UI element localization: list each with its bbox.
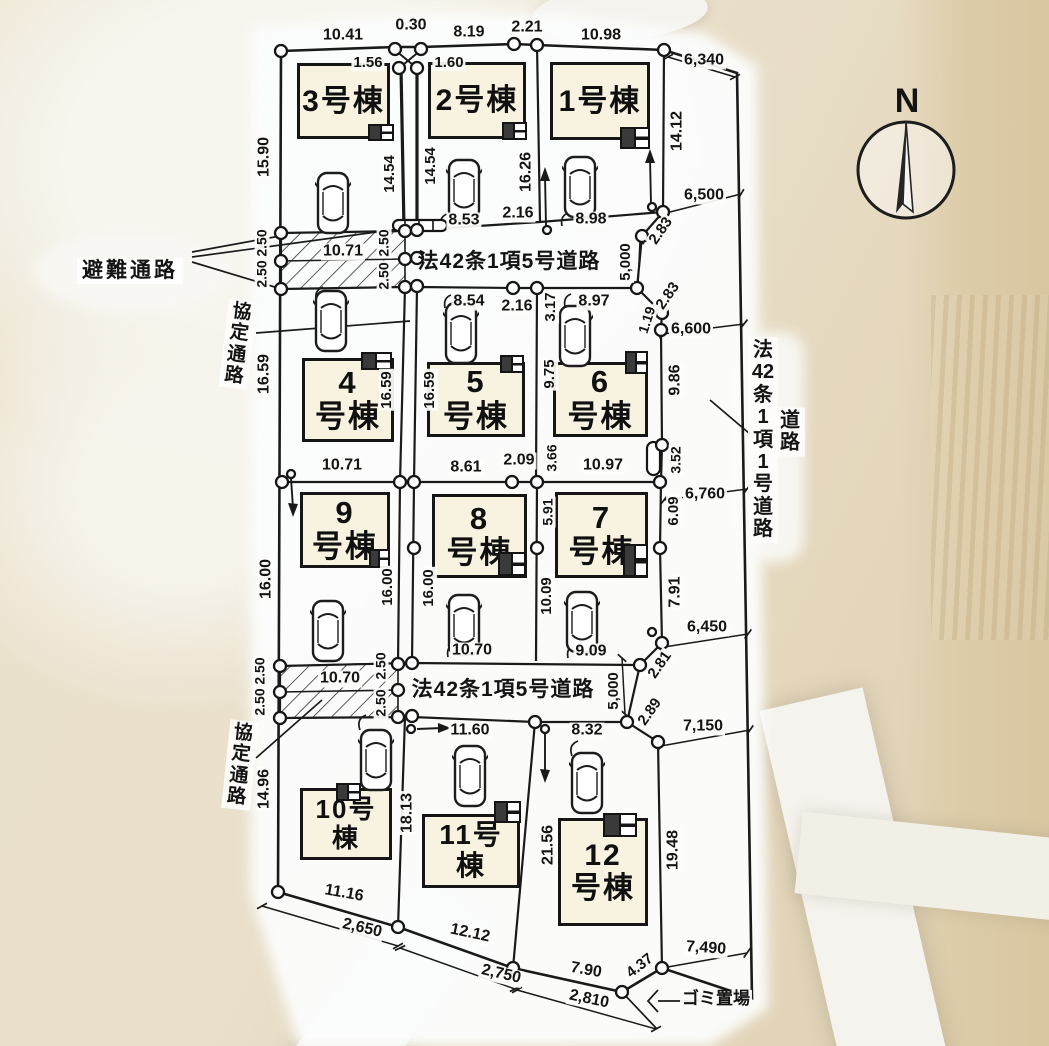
- site-plan-page: 1号棟2号棟3号棟4 号棟5 号棟6 号棟7 号棟8 号棟9 号棟10号棟11号…: [0, 0, 1049, 1046]
- compass: [858, 121, 954, 218]
- site-plan-drawing: [0, 0, 1049, 1046]
- plan-paper: [34, 14, 804, 1046]
